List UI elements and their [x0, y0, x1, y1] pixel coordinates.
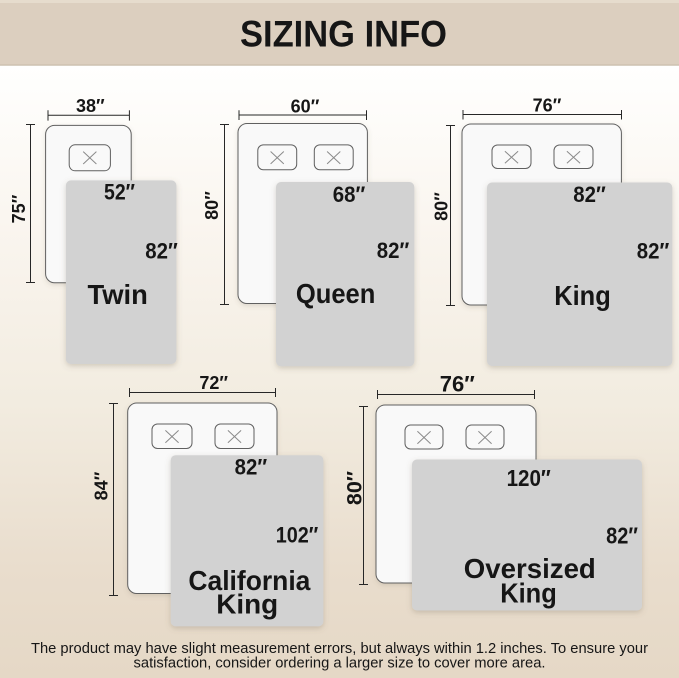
svg-text:120″: 120″ [507, 465, 551, 491]
svg-text:68″: 68″ [333, 182, 366, 207]
svg-text:Queen: Queen [296, 278, 376, 309]
svg-text:82″: 82″ [637, 239, 670, 264]
svg-text:SIZING INFO: SIZING INFO [240, 14, 447, 55]
svg-text:60″: 60″ [291, 97, 320, 117]
svg-text:75″: 75″ [9, 194, 29, 223]
svg-text:82″: 82″ [235, 455, 268, 480]
svg-text:Twin: Twin [88, 279, 148, 310]
svg-text:52″: 52″ [104, 179, 135, 204]
svg-text:80″: 80″ [202, 191, 222, 220]
svg-text:38″: 38″ [76, 96, 105, 116]
svg-text:82″: 82″ [377, 238, 410, 263]
svg-text:King: King [500, 578, 557, 609]
svg-text:82″: 82″ [573, 182, 606, 207]
svg-text:80″: 80″ [343, 471, 367, 505]
svg-text:84″: 84″ [92, 471, 112, 500]
svg-text:80″: 80″ [432, 192, 452, 221]
svg-text:82″: 82″ [145, 239, 178, 264]
svg-text:satisfaction, consider orderin: satisfaction, consider ordering a larger… [134, 656, 546, 672]
svg-text:72″: 72″ [199, 373, 228, 393]
svg-text:King: King [216, 589, 278, 620]
svg-text:King: King [554, 280, 611, 311]
svg-text:76″: 76″ [533, 96, 562, 116]
svg-text:82″: 82″ [606, 523, 638, 549]
svg-text:102″: 102″ [276, 522, 319, 547]
svg-text:76″: 76″ [440, 372, 475, 397]
